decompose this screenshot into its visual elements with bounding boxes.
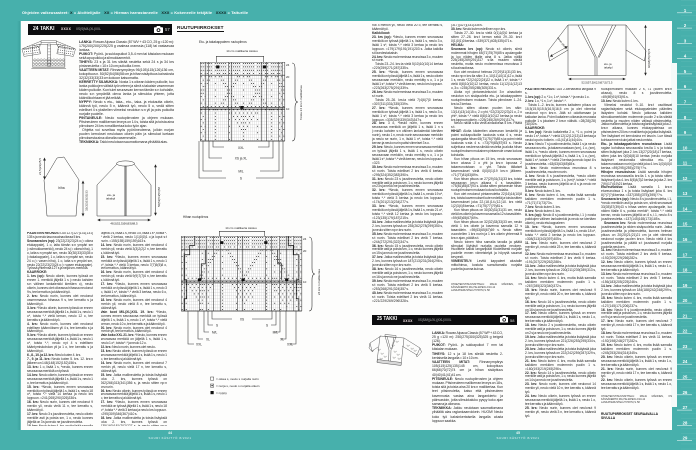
svg-text:hihan pituus: hihan pituus — [556, 36, 568, 50]
svg-text:M/L: M/L — [212, 330, 218, 334]
svg-text:48,5(52,5)56(63)68,5: 48,5(52,5)56(63)68,5 — [110, 221, 138, 225]
svg-text:XL: XL — [280, 337, 284, 341]
svg-text:XXL: XXL — [238, 146, 244, 150]
svg-text:21: 21 — [683, 313, 688, 318]
svg-text:13: 13 — [683, 191, 688, 196]
svg-text:52,5(57,5)62,5(67,5)72,5: 52,5(57,5)62,5(67,5)72,5 — [582, 81, 613, 85]
svg-text:XS ja XL: XS ja XL — [235, 157, 248, 161]
svg-text:27: 27 — [683, 405, 688, 410]
svg-text:XL: XL — [206, 337, 210, 341]
svg-text:21,5(23)25,5: 21,5(23)25,5 — [38, 158, 42, 175]
svg-text:= nurja s, neulo s nurjalla oi: = nurja s, neulo s nurjalla oikein — [216, 384, 260, 388]
svg-text:takakpl: takakpl — [106, 197, 116, 201]
svg-text:16: 16 — [683, 237, 688, 242]
svg-text:26: 26 — [683, 390, 688, 395]
svg-text:M/L: M/L — [273, 330, 279, 334]
svg-text:19: 19 — [683, 283, 688, 288]
svg-text:32(32)33(33)33: 32(32)33(33)33 — [85, 190, 89, 211]
svg-text:50(52)54(56)58: 50(52)54(56)58 — [157, 187, 161, 207]
svg-text:etu- ja: etu- ja — [604, 62, 612, 66]
svg-text:24: 24 — [683, 359, 688, 364]
svg-text:M/L: M/L — [238, 170, 244, 174]
svg-text:takakpl: takakpl — [604, 65, 613, 69]
svg-text:20: 20 — [683, 298, 688, 303]
svg-text:9: 9 — [684, 130, 687, 135]
svg-text:= oikea s, neulo s nurjalla nu: = oikea s, neulo s nurjalla nurin — [216, 377, 259, 381]
svg-text:hiha: hiha — [58, 186, 64, 190]
svg-text:28: 28 — [683, 420, 688, 425]
svg-text:XXL: XXL — [196, 343, 202, 347]
svg-text:= nyppy: = nyppy — [216, 391, 227, 395]
svg-text:10: 10 — [683, 145, 688, 150]
svg-text:29: 29 — [683, 436, 688, 441]
svg-text:22: 22 — [683, 329, 688, 334]
svg-text:25: 25 — [683, 375, 688, 380]
svg-text:11: 11 — [683, 161, 688, 166]
svg-text:23: 23 — [683, 344, 688, 349]
svg-text:18: 18 — [683, 268, 688, 273]
svg-text:S: S — [240, 177, 242, 181]
svg-text:S: S — [266, 323, 268, 327]
svg-text:12: 12 — [683, 176, 688, 181]
svg-text:14: 14 — [683, 206, 688, 211]
svg-text:17: 17 — [683, 252, 688, 257]
svg-text:XXL: XXL — [287, 343, 293, 347]
svg-text:S: S — [216, 323, 218, 327]
svg-text:XS: XS — [240, 317, 244, 321]
svg-text:66(68)70(72)74: 66(68)70(72)74 — [647, 48, 651, 68]
svg-text:15: 15 — [683, 222, 688, 227]
